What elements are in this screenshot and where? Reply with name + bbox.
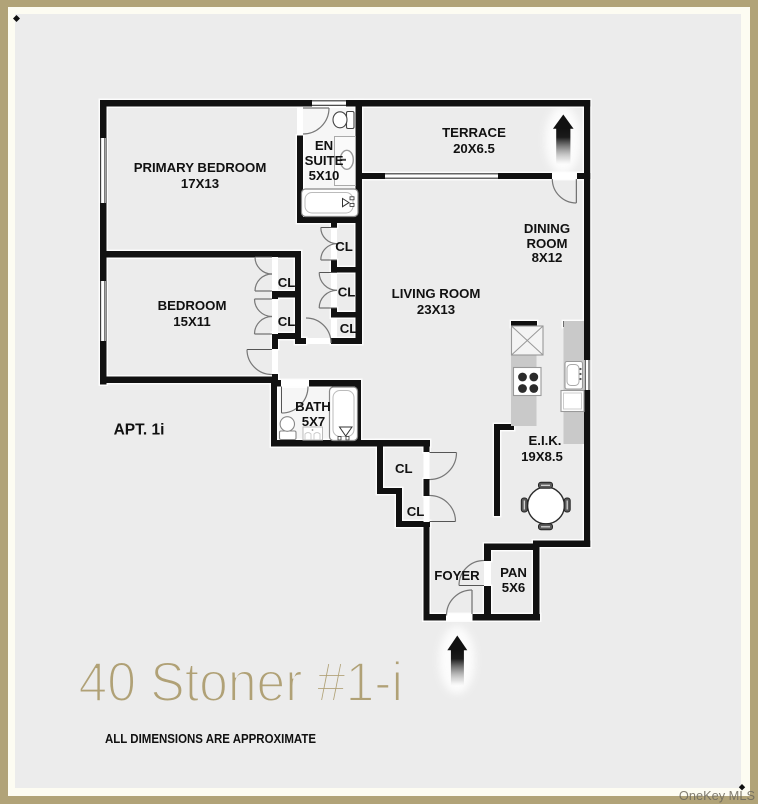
svg-text:PRIMARY BEDROOM: PRIMARY BEDROOM <box>134 160 267 175</box>
svg-text:CL: CL <box>395 461 413 476</box>
svg-text:FOYER: FOYER <box>434 568 480 583</box>
svg-text:ALL DIMENSIONS ARE APPROXIMATE: ALL DIMENSIONS ARE APPROXIMATE <box>105 731 316 746</box>
svg-text:CL: CL <box>407 504 425 519</box>
svg-text:5X7: 5X7 <box>302 414 325 429</box>
svg-text:TERRACE: TERRACE <box>442 125 506 140</box>
svg-text:DINING: DINING <box>524 221 570 236</box>
svg-text:19X8.5: 19X8.5 <box>521 449 563 464</box>
svg-text:CL: CL <box>340 321 358 336</box>
svg-text:ROOM: ROOM <box>526 236 567 251</box>
svg-text:OneKey MLS: OneKey MLS <box>679 788 755 803</box>
svg-text:40 Stoner #1-i: 40 Stoner #1-i <box>79 651 403 713</box>
svg-text:EN: EN <box>315 138 333 153</box>
svg-text:5X6: 5X6 <box>502 580 525 595</box>
svg-text:CL: CL <box>278 275 296 290</box>
svg-text:20X6.5: 20X6.5 <box>453 141 495 156</box>
svg-text:PAN: PAN <box>500 565 527 580</box>
svg-text:CL: CL <box>278 314 296 329</box>
svg-text:17X13: 17X13 <box>181 176 219 191</box>
svg-text:APT. 1i: APT. 1i <box>114 422 165 439</box>
svg-text:BATH: BATH <box>295 399 331 414</box>
svg-text:CL: CL <box>338 285 356 300</box>
svg-text:23X13: 23X13 <box>417 302 455 317</box>
svg-text:LIVING ROOM: LIVING ROOM <box>392 286 481 301</box>
svg-text:CL: CL <box>335 239 353 254</box>
svg-text:8X12: 8X12 <box>532 250 563 265</box>
svg-text:E.I.K.: E.I.K. <box>529 433 562 448</box>
svg-text:SUITE: SUITE <box>305 153 344 168</box>
svg-text:5X10: 5X10 <box>309 168 340 183</box>
svg-text:BEDROOM: BEDROOM <box>158 298 227 313</box>
svg-text:15X11: 15X11 <box>173 314 210 329</box>
